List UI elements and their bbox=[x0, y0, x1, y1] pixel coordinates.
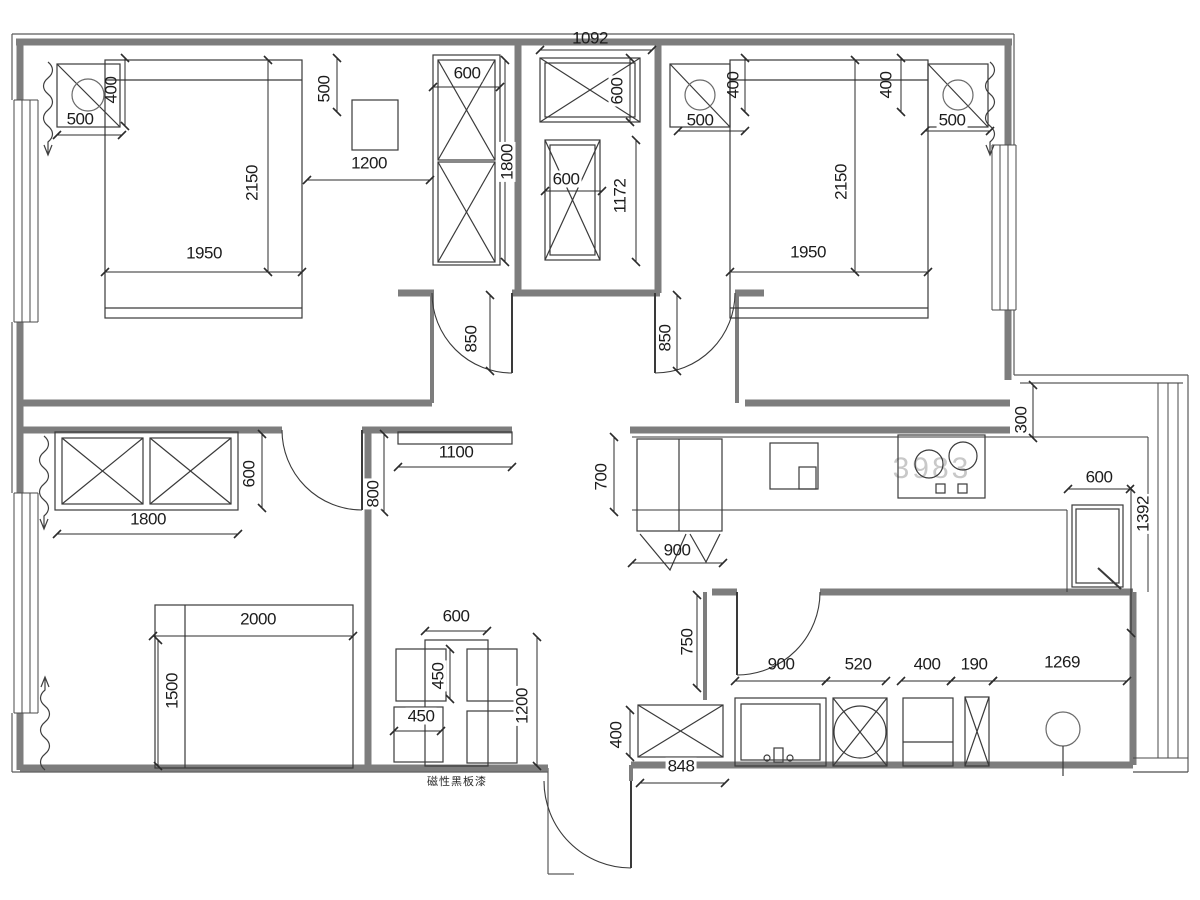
wardrobe-bedroom3 bbox=[55, 432, 238, 510]
dim-label-b3-wardrobe-depth: 600 bbox=[241, 461, 258, 488]
dim-label-bath-cabinet-width: 400 bbox=[914, 656, 941, 673]
dim-label-tl-desk-offset: 500 bbox=[316, 76, 333, 103]
dim-label-bath-toilet-zone: 1269 bbox=[1044, 654, 1080, 671]
dim-label-tl-nightstand-width: 500 bbox=[67, 111, 94, 128]
floorplan-page: 3983 bbox=[0, 0, 1200, 900]
dim-label-tr-nightstand-right-width: 500 bbox=[937, 112, 968, 129]
dim-label-dining-chair-depth: 450 bbox=[430, 661, 447, 692]
dim-label-kitchen-wall-gap: 300 bbox=[1013, 407, 1030, 434]
closet-cabinet-side bbox=[545, 140, 600, 260]
kitchen-fixtures bbox=[632, 435, 1148, 592]
door-entry bbox=[544, 781, 631, 868]
dim-label-shoe-cabinet-width: 848 bbox=[666, 758, 697, 775]
dim-label-tl-bed-width: 1950 bbox=[186, 245, 222, 262]
vanity-sink bbox=[735, 698, 826, 766]
dim-label-tl-nightstand-depth: 400 bbox=[103, 77, 120, 104]
dim-label-kitchen-sink-width: 900 bbox=[664, 542, 691, 559]
dim-label-door-bedroom-left: 850 bbox=[463, 324, 480, 355]
bed-top-left bbox=[105, 60, 302, 318]
dim-label-tl-bed-length: 2150 bbox=[244, 165, 261, 201]
dim-label-b3-bed-width: 2000 bbox=[240, 611, 276, 628]
dim-label-door-bedroom-right: 850 bbox=[657, 323, 674, 354]
bed-top-right bbox=[730, 60, 928, 318]
dim-label-door-bedroom3: 800 bbox=[365, 479, 382, 510]
dim-label-tr-nightstand-right-depth: 400 bbox=[878, 72, 895, 99]
dim-label-shoe-cabinet-depth: 400 bbox=[608, 720, 625, 751]
washing-machine-icon bbox=[833, 698, 887, 766]
bath-cabinet bbox=[903, 698, 953, 766]
dim-label-tr-bed-length: 2150 bbox=[833, 164, 850, 200]
doors bbox=[282, 293, 820, 868]
dim-label-dining-zone-length: 1200 bbox=[514, 686, 531, 726]
dim-label-b3-wardrobe-width: 1800 bbox=[130, 511, 166, 528]
dim-label-bath-wall-length: 750 bbox=[679, 629, 696, 656]
dim-label-closet-box-depth: 600 bbox=[609, 76, 626, 107]
wall-unit bbox=[770, 443, 818, 489]
dim-label-dining-chair-width: 450 bbox=[406, 708, 437, 725]
dim-label-dining-table-width: 600 bbox=[443, 608, 470, 625]
dim-label-closet-box-height: 1172 bbox=[612, 177, 629, 216]
dim-label-tl-desk-width: 1200 bbox=[351, 155, 387, 172]
dim-label-tr-bed-width: 1950 bbox=[790, 244, 826, 261]
cooktop-icon bbox=[898, 435, 985, 498]
dim-label-tl-wardrobe-width: 600 bbox=[452, 65, 483, 82]
fridge-icon bbox=[1072, 505, 1123, 589]
dim-label-tl-wardrobe-height: 1800 bbox=[499, 142, 516, 182]
dim-label-bath-shelf-width: 190 bbox=[961, 656, 988, 673]
dim-label-tr-nightstand-left-width: 500 bbox=[687, 112, 714, 129]
dim-label-bath-vanity-width: 900 bbox=[768, 656, 795, 673]
dim-label-tr-nightstand-left-depth: 400 bbox=[725, 72, 742, 99]
dining-table bbox=[425, 640, 488, 766]
tall-shelf bbox=[965, 697, 989, 766]
dim-label-b3-bed-length: 1500 bbox=[164, 671, 181, 711]
bed-bedroom3 bbox=[155, 605, 353, 768]
curtain-icon bbox=[44, 62, 53, 155]
dim-label-fridge-width: 600 bbox=[1086, 469, 1113, 486]
desk-top-left bbox=[352, 100, 398, 150]
dim-label-kitchen-counter-depth: 700 bbox=[593, 464, 610, 491]
dim-label-closet-box-width: 600 bbox=[551, 171, 582, 188]
floorplan-drawing bbox=[0, 0, 1200, 900]
dim-label-bath-washer-width: 520 bbox=[845, 656, 872, 673]
curtain-icon bbox=[986, 62, 995, 155]
shoe-cabinet bbox=[638, 705, 723, 757]
windows bbox=[10, 100, 1188, 772]
dim-label-kitchen-right-length: 1392 bbox=[1135, 494, 1152, 534]
dim-label-hall-shelf-width: 1100 bbox=[439, 444, 474, 461]
dim-label-closet-width: 1092 bbox=[572, 30, 608, 47]
wall-finish-note: 磁性黑板漆 bbox=[427, 773, 487, 789]
door-bedroom3 bbox=[282, 430, 362, 510]
